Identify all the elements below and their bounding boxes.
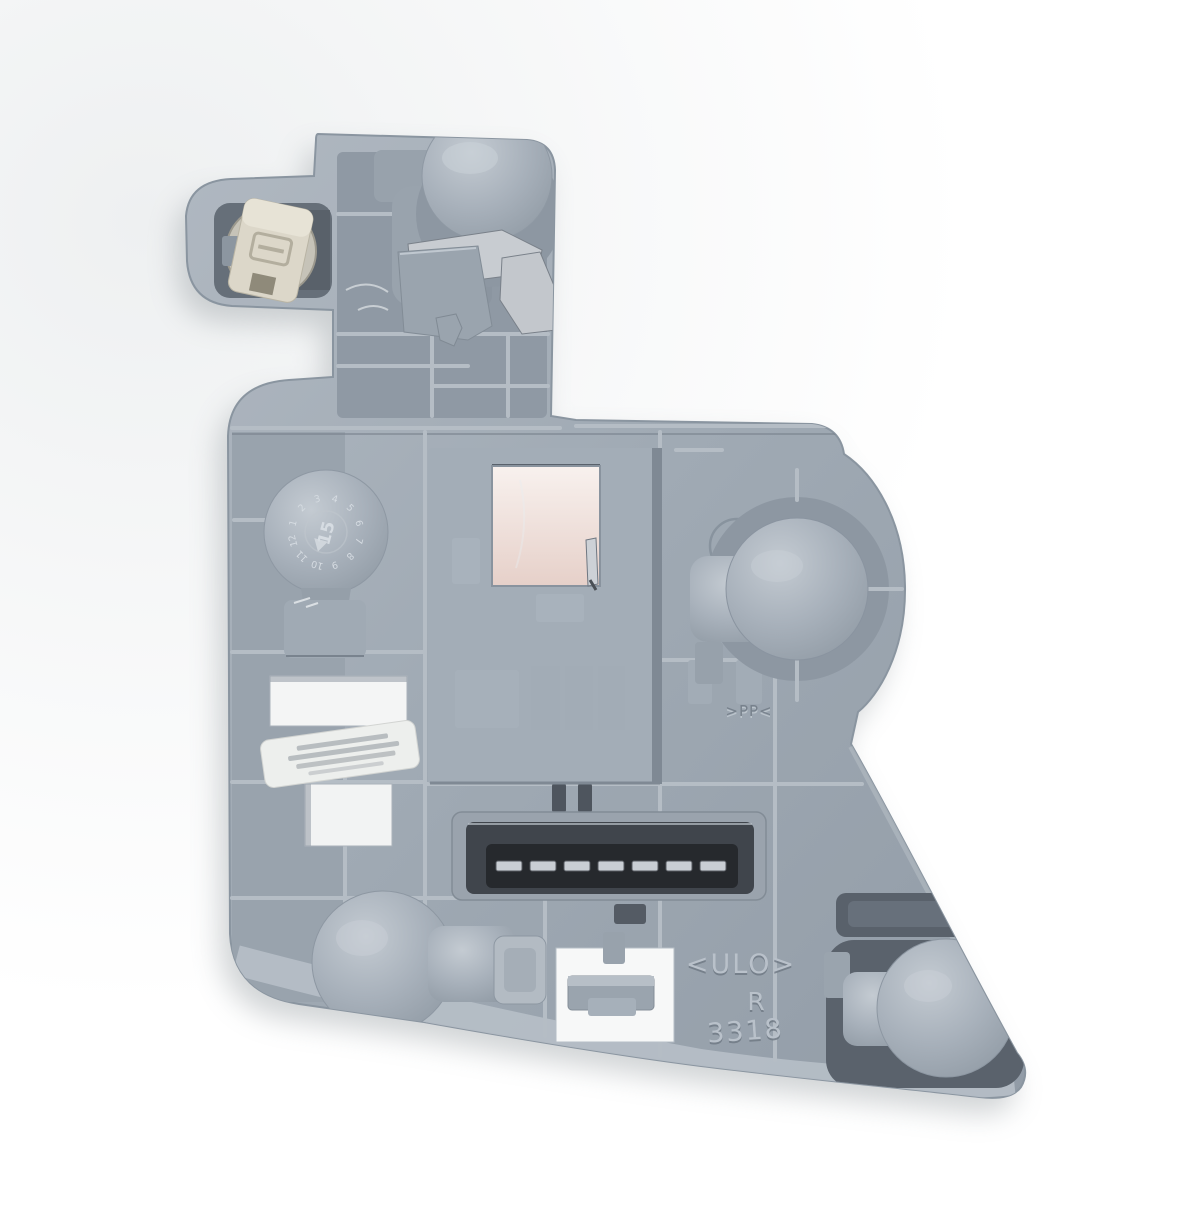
connector-pin — [632, 861, 658, 871]
svg-text:>PP<: >PP< — [725, 702, 772, 720]
socket-base — [284, 600, 366, 658]
white-window-lower — [305, 784, 392, 846]
arm-bulb-socket — [214, 197, 332, 304]
rib-main-ledge — [232, 426, 838, 428]
plateau-edge-shadow — [652, 448, 662, 784]
cap-highlight — [751, 550, 803, 582]
svg-text:<ULO>: <ULO> — [686, 949, 796, 980]
cap-highlight — [904, 970, 952, 1002]
cap-highlight — [336, 920, 388, 956]
center-plateau — [428, 448, 662, 784]
connector-pin — [666, 861, 692, 871]
molded-block — [565, 666, 593, 730]
metal-contact — [586, 538, 598, 586]
svg-text:3318: 3318 — [706, 1013, 785, 1049]
latch-inner — [504, 948, 536, 992]
connector-pin — [564, 861, 590, 871]
marking-brand: <ULO> <ULO> — [686, 949, 796, 982]
window-inner-shadow — [270, 676, 407, 682]
molded-slot — [614, 904, 646, 924]
cylinder-cap — [422, 111, 552, 241]
svg-text:R: R — [747, 987, 766, 1016]
molded-tab — [452, 538, 480, 584]
molded-tab — [603, 932, 625, 964]
center-reflector-window — [492, 466, 600, 586]
marking-side-r: R R — [747, 987, 766, 1018]
window-inner-shadow — [305, 784, 311, 846]
metal-contact-clip — [398, 230, 560, 340]
marking-material: >PP< >PP< — [725, 702, 772, 722]
latch-highlight — [568, 976, 654, 986]
connector-pin — [530, 861, 556, 871]
bottom-window — [556, 932, 674, 1042]
recess-band-inner — [848, 901, 1006, 927]
socket-cap — [726, 518, 868, 660]
latch-inner — [588, 998, 636, 1016]
molded-slot — [578, 783, 592, 813]
molded-slot — [552, 783, 566, 813]
connector-pin — [700, 861, 726, 871]
molded-tab — [536, 594, 584, 622]
connector-pin — [598, 861, 624, 871]
connector-slot — [452, 812, 766, 900]
socket-cap — [877, 939, 1015, 1077]
cap-highlight — [442, 142, 498, 174]
molded-block — [598, 666, 625, 730]
product-photo: 1 2 3 4 5 6 7 8 9 10 11 12 15 — [0, 0, 1200, 1230]
marking-mold-number: 3318 3318 — [706, 1013, 785, 1051]
molded-block — [531, 666, 560, 730]
white-window-upper — [270, 676, 407, 726]
socket-foot — [695, 642, 723, 684]
connector-pin — [496, 861, 522, 871]
molded-block — [455, 670, 519, 728]
